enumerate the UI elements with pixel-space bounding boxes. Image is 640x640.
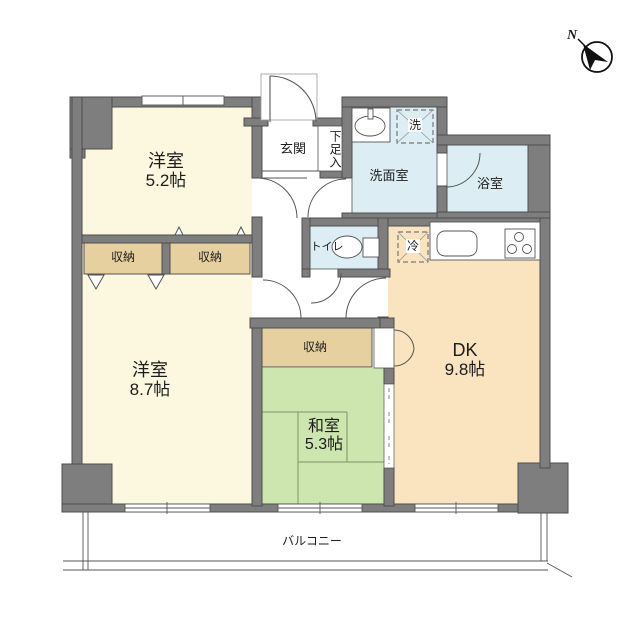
pillar-bottom-right [518,463,568,513]
wall-washroom-west [342,97,352,178]
label-bathroom: 浴室 [458,177,522,192]
label-shoe-cabinet: 下足入 [321,127,341,171]
door-western2 [263,280,301,318]
toilet-tank [363,238,379,257]
wall-left [72,97,82,507]
label-western-room-1: 洋室 5.2帖 [106,151,226,190]
label-closet-c: 収納 [258,341,372,354]
wall-washroom-top [342,97,447,107]
door-toilet [311,273,341,303]
label-japanese-room: 和室 5.3帖 [264,418,384,454]
folding-door-panel [374,328,394,368]
wall-toilet-top [302,218,386,226]
wall-bath-west-stub [437,145,447,153]
door-western1 [257,178,297,218]
wall-closet-c-top [250,318,380,328]
wall-fusuma-north [384,368,394,384]
label-dk: DK 9.8帖 [405,340,525,379]
compass-icon [578,39,612,72]
wall-bath-east [528,145,550,220]
wall-fusuma-south [384,468,394,506]
japanese-room-size: 5.3帖 [264,436,384,454]
label-washer: 洗 [408,118,422,132]
vanity-faucet [368,109,373,119]
western-room-1-size: 5.2帖 [106,171,226,190]
wall-closet-top [82,235,252,243]
label-north: N [563,28,581,44]
label-fridge: 冷 [406,239,420,253]
wall-corridor-west-a [252,97,262,178]
label-toilet: トイレ [306,241,348,253]
japanese-room-name: 和室 [264,418,384,436]
label-washroom: 洗面室 [346,169,432,184]
label-western-room-2: 洋室 8.7帖 [90,360,210,399]
dk-size: 9.8帖 [405,360,525,379]
western-room-2-size: 8.7帖 [90,380,210,399]
wall-closet-divider [162,243,170,274]
kitchen-sink [437,231,477,256]
label-entrance: 玄関 [263,142,323,157]
door-washroom [308,179,346,217]
wall-toilet-bottom-left [302,269,310,277]
western-room-1-name: 洋室 [106,151,226,171]
label-balcony: バルコニー [268,535,356,548]
wall-corridor-west-b [252,217,262,277]
western-room-2-name: 洋室 [90,360,210,380]
label-closet-a: 収納 [84,251,162,264]
label-closet-b: 収納 [170,251,250,264]
wall-bath-top [437,135,550,145]
door-dk [346,278,386,318]
wall-toilet-bottom-right [338,269,390,277]
floor-plan: 洋室 5.2帖 洋室 8.7帖 和室 5.3帖 DK 9.8帖 玄関 下足入 洗… [0,0,640,640]
wall-right [540,218,550,468]
dk-name: DK [405,340,525,360]
wall-toilet-east [378,218,388,277]
